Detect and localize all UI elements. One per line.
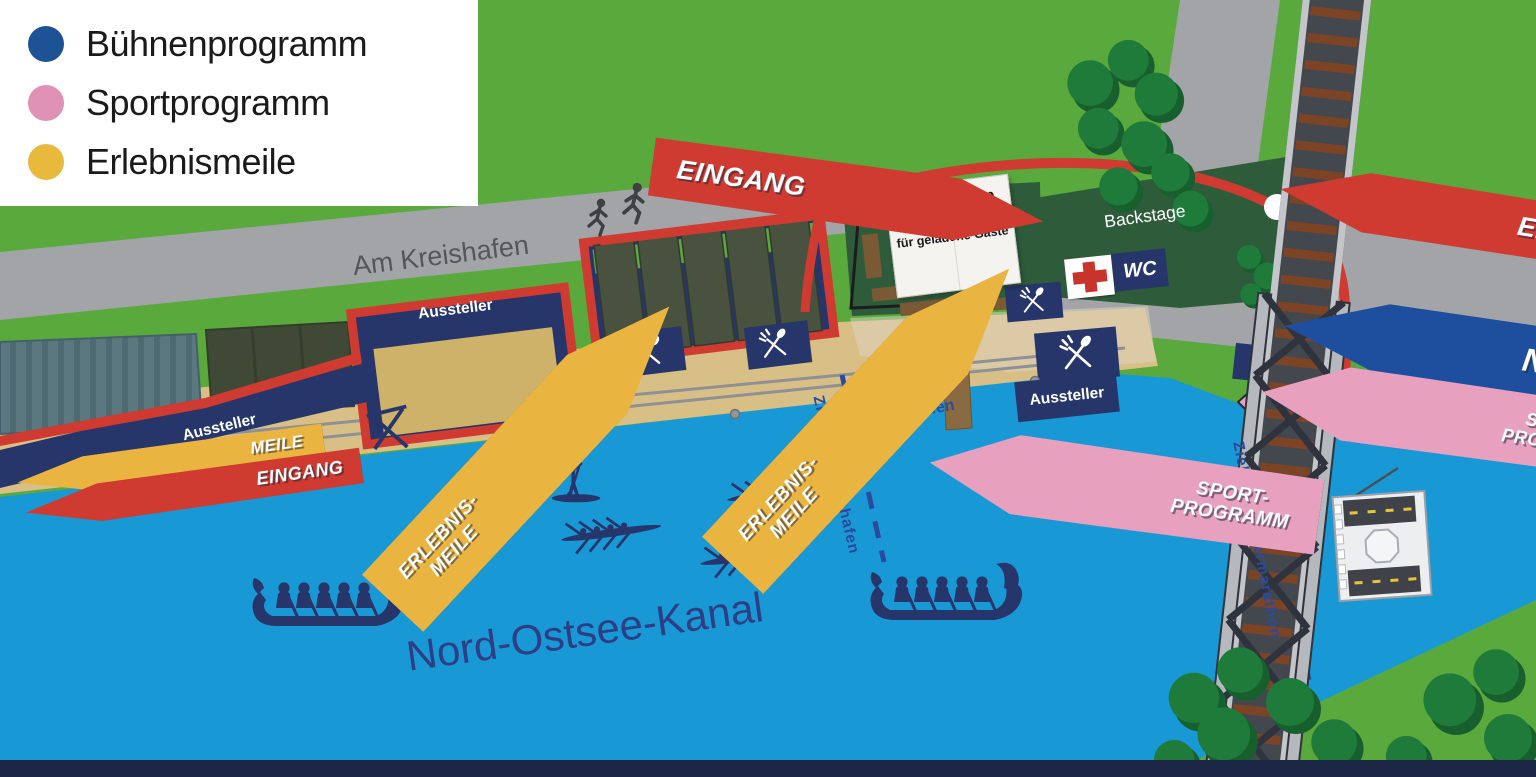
legend-box: Bühnenprogramm Sportprogramm Erlebnismei… [0,0,478,206]
entrance-right-text: EINGANG [1515,212,1536,261]
legend-item-buehnenprogramm: Bühnenprogramm [28,23,478,65]
meile-entrance-text: EINGANG [255,458,344,489]
legend-item-erlebnismeile: Erlebnismeile [28,141,478,183]
bottom-strip [0,760,1536,777]
sport-right-line2: PROGRAMM [1500,426,1536,461]
legend-label: Erlebnismeile [86,141,296,183]
blue-dot-icon [28,26,64,62]
legend-item-sportprogramm: Sportprogramm [28,82,478,124]
yellow-dot-icon [28,144,64,180]
legend-label: Bühnenprogramm [86,23,367,65]
pink-dot-icon [28,85,64,121]
aussteller-right-label: Aussteller [1029,384,1105,410]
event-map: Bühnenprogramm Sportprogramm Erlebnismei… [0,0,1536,777]
entrance-left-text: EINGANG [675,156,807,203]
wc-station: WC [1111,248,1169,291]
first-aid-station [1064,255,1115,300]
legend-label: Sportprogramm [86,82,330,124]
meile-text: MEILE [250,434,305,459]
red-cross-icon [1072,269,1107,284]
wc-label: WC [1122,257,1158,283]
